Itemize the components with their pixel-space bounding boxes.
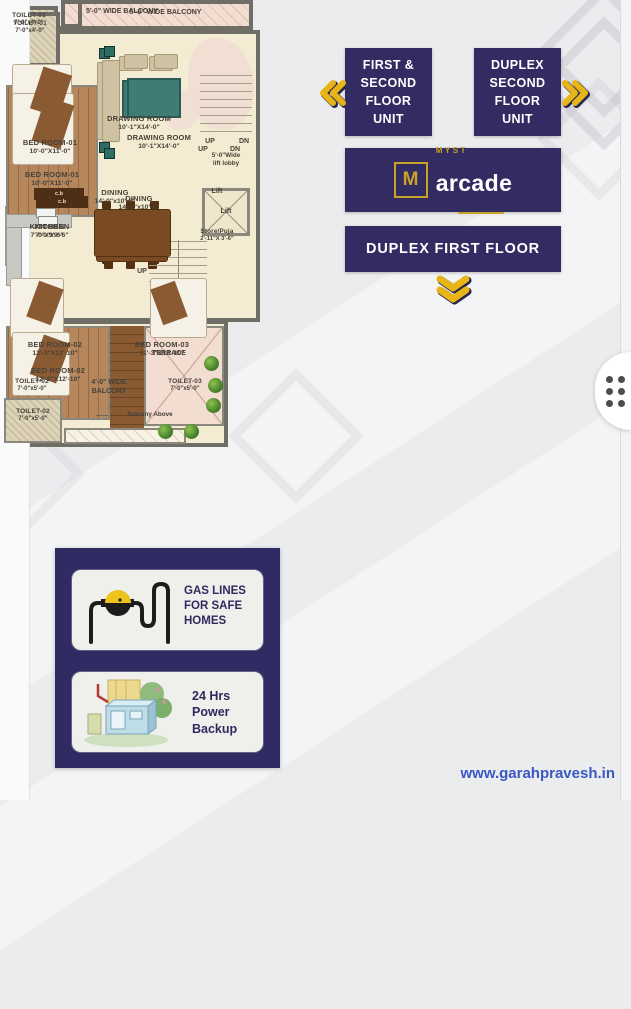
store-puja-label: Store/Puja 2'-11"X 3'-6" <box>186 228 248 244</box>
plant-icon <box>206 398 221 413</box>
brand-underline-decor <box>458 212 504 214</box>
amenities-panel: GAS LINES FOR SAFE HOMES 24 Hrs Power Ba… <box>55 548 280 768</box>
power-backup-card: 24 Hrs Power Backup <box>72 672 263 752</box>
first-second-floor-unit-label: FIRST & SECOND FLOOR UNIT <box>361 56 417 129</box>
dining-label: DINING 14'-0"x10'-6" <box>82 188 148 207</box>
lift-lobby-label: 5'-0"Wide lift lobby <box>198 152 254 168</box>
brand-name-top: MYST <box>436 146 513 155</box>
cupboard: c.b <box>36 196 88 208</box>
lift-label: Lift <box>192 188 242 197</box>
chevrons-right-icon[interactable] <box>562 77 594 109</box>
power-backup-text: 24 Hrs Power Backup <box>192 688 254 737</box>
gas-lines-card: GAS LINES FOR SAFE HOMES <box>72 570 263 650</box>
lift-label: Lift <box>202 208 250 217</box>
drawing-room-label: DRAWING ROOM 10'-1"X14'-0" <box>99 114 179 133</box>
plant-icon <box>204 356 219 371</box>
armchair-icon <box>154 54 178 69</box>
toilet-01-label: TOILET-01 7'-0"x4'-0" <box>2 20 58 36</box>
brand-monogram-icon: M <box>394 162 428 198</box>
stairs-dn-label: DN <box>232 138 256 147</box>
toilet-03-label: TOILET-03 7'-0"x5'-0" <box>158 378 212 394</box>
stairs-up-label: UP <box>130 268 154 277</box>
bedroom-01-label: BED ROOM-01 10'-0"X11'-0" <box>6 170 98 189</box>
balcony-above-dash <box>96 415 108 416</box>
plant-icon <box>184 424 199 439</box>
duplex-second-floor-unit-button[interactable]: DUPLEX SECOND FLOOR UNIT <box>474 48 561 136</box>
stairs-up-label: UP <box>198 138 222 147</box>
staircase <box>200 72 252 132</box>
terrace-label: TERRACE <box>124 350 214 359</box>
bedroom-01-label: BED ROOM-01 10'-0"X11'-0" <box>6 138 94 157</box>
floor-plan-brochure-page: { "page": {"watermark": "www.garahpraves… <box>0 0 631 800</box>
plant-icon <box>208 378 223 393</box>
generator-icon <box>78 676 182 748</box>
bedroom-02-label: BED ROOM-02 12'-3"X12'-10" <box>6 366 110 385</box>
balcony-above-label: Balcony Above <box>110 411 190 419</box>
kitchen-label: KITCHEN 7'-0"x9'-6" <box>14 222 80 241</box>
chevrons-left-icon[interactable] <box>314 77 346 109</box>
duplex-first-floor-button[interactable]: DUPLEX FIRST FLOOR <box>345 226 561 272</box>
duplex-first-floor-label: DUPLEX FIRST FLOOR <box>366 241 540 257</box>
gas-lines-text: GAS LINES FOR SAFE HOMES <box>184 584 258 629</box>
toilet-02-label: TOILET-02 7'-0"x5'-0" <box>4 408 62 424</box>
duplex-second-floor-unit-label: DUPLEX SECOND FLOOR UNIT <box>490 56 546 129</box>
gas-meter-icon <box>78 576 178 644</box>
watermark-link[interactable]: www.garahpravesh.in <box>430 765 615 782</box>
watermark-text: www.garahpravesh.in <box>461 765 616 782</box>
drag-handle-dots-icon <box>606 376 625 407</box>
first-second-floor-unit-button[interactable]: FIRST & SECOND FLOOR UNIT <box>345 48 432 136</box>
chevrons-down-icon[interactable] <box>434 274 472 306</box>
dining-table-icon <box>94 209 171 257</box>
brand-name-main: arcade <box>436 173 513 195</box>
bedroom-02-label: BED ROOM-02 12'-3"X12'-10" <box>5 340 105 359</box>
brand-logo-plate: M MYST arcade <box>345 148 561 212</box>
rug-icon <box>127 78 181 118</box>
plant-icon <box>158 424 173 439</box>
armchair-icon <box>124 54 148 69</box>
plant-icon <box>104 46 115 57</box>
balcony-top-label: 5'-0" WIDE BALCONY <box>80 9 251 18</box>
